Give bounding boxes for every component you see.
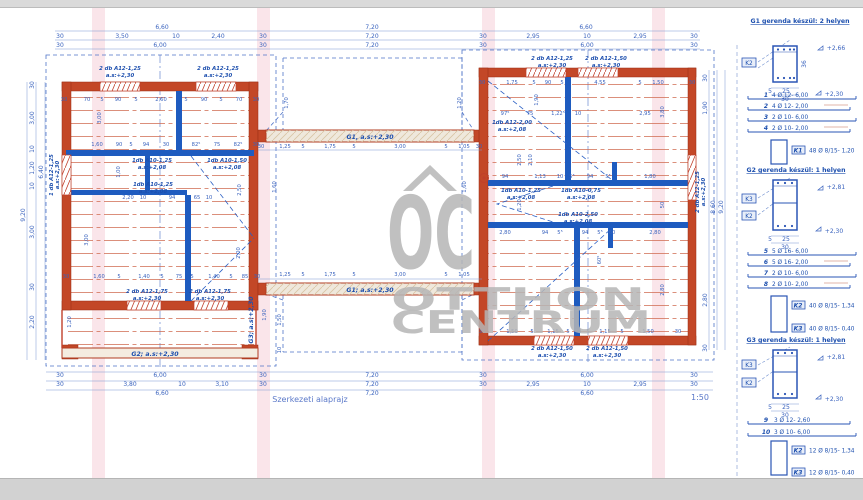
svg-text:2,00: 2,00 [236,247,242,259]
svg-text:a.s:+2,30: a.s:+2,30 [106,73,135,79]
svg-text:30: 30 [259,33,267,40]
svg-text:3,10: 3,10 [215,381,229,388]
svg-text:3,00: 3,00 [394,144,406,150]
svg-text:90: 90 [116,142,123,148]
svg-text:1,50: 1,50 [277,314,283,326]
svg-text:30: 30 [259,42,267,49]
svg-text:30: 30 [163,142,170,148]
svg-text:75: 75 [176,274,183,280]
svg-text:10: 10 [29,145,36,153]
svg-text:4 Ø 12- 2,00: 4 Ø 12- 2,00 [772,103,808,110]
svg-text:a.s:+2,08: a.s:+2,08 [507,195,536,201]
svg-text:2 db A12-1,75: 2 db A12-1,75 [189,289,231,295]
svg-text:48 Ø 8/15- 1,20: 48 Ø 8/15- 1,20 [809,148,855,155]
detail-title-g1: G1 gerenda készül: 2 helyen [751,17,850,25]
svg-text:2,20: 2,20 [29,315,36,329]
svg-text:94: 94 [169,195,176,201]
svg-text:a.s:+2,30: a.s:+2,30 [593,353,622,359]
svg-text:5⁵: 5⁵ [569,174,574,180]
svg-text:1,40: 1,40 [138,274,150,280]
svg-text:12 Ø 8/15- 0,40: 12 Ø 8/15- 0,40 [809,470,855,477]
svg-text:2,40: 2,40 [211,33,225,40]
svg-text:1,80: 1,80 [644,174,656,180]
svg-text:12 Ø 8/15- 1,34: 12 Ø 8/15- 1,34 [809,448,855,455]
svg-text:1,22⁵: 1,22⁵ [551,111,565,117]
svg-text:5⁵: 5⁵ [605,174,610,180]
svg-text:30: 30 [254,274,261,280]
svg-text:a.s:+2,30: a.s:+2,30 [55,161,61,190]
svg-text:5: 5 [219,97,222,103]
svg-text:94: 94 [143,142,150,148]
svg-text:5: 5 [229,274,232,280]
svg-text:K1: K1 [794,148,803,155]
svg-text:5: 5 [301,144,304,150]
svg-text:2,50: 2,50 [237,184,243,196]
svg-text:7,20: 7,20 [365,390,379,397]
svg-text:2,80: 2,80 [649,230,661,236]
svg-text:5: 5 [444,144,447,150]
svg-text:6,00: 6,00 [153,372,167,379]
svg-text:5: 5 [190,274,193,280]
svg-text:1,20: 1,20 [29,161,36,175]
svg-text:30: 30 [476,144,483,150]
svg-text:5: 5 [160,274,163,280]
svg-text:90: 90 [115,97,122,103]
svg-text:94: 94 [502,174,509,180]
svg-text:5 Ø 16- 6,00: 5 Ø 16- 6,00 [772,248,808,255]
svg-text:3 Ø 12- 2,60: 3 Ø 12- 2,60 [774,417,810,424]
svg-text:a.s:+2,30: a.s:+2,30 [592,63,621,69]
svg-text:1,90: 1,90 [702,101,709,115]
svg-text:a.s:+2,08: a.s:+2,08 [567,195,596,201]
svg-text:40 Ø 8/15- 1,34: 40 Ø 8/15- 1,34 [809,303,855,310]
svg-text:1,25: 1,25 [279,144,291,150]
svg-text:30: 30 [479,33,487,40]
svg-text:1,75: 1,75 [506,80,518,86]
svg-text:5: 5 [129,142,132,148]
svg-text:5: 5 [134,97,137,103]
svg-text:10: 10 [583,33,591,40]
svg-text:2: 2 [764,103,768,110]
oc-logo-letters: OC [387,175,475,292]
svg-text:2 db A12-1,75: 2 db A12-1,75 [126,289,168,295]
svg-text:90: 90 [201,97,208,103]
svg-text:a.s:+2,08: a.s:+2,08 [138,165,167,171]
svg-text:82⁵: 82⁵ [192,142,201,148]
svg-text:6,60: 6,60 [579,24,593,31]
svg-text:a.s:+2,30: a.s:+2,30 [538,63,567,69]
svg-text:30: 30 [479,372,487,379]
svg-text:10: 10 [583,381,591,388]
svg-text:K2: K2 [794,448,803,455]
svg-text:30: 30 [689,80,696,86]
svg-text:1,05: 1,05 [458,144,470,150]
svg-text:1,90: 1,90 [262,309,268,321]
svg-text:60⁵: 60⁵ [597,256,603,265]
svg-text:5: 5 [100,97,103,103]
svg-text:K3: K3 [794,470,803,477]
svg-text:a.s:+2,08: a.s:+2,08 [498,127,527,133]
svg-text:1db A12-2,00: 1db A12-2,00 [492,120,532,126]
svg-text:94: 94 [582,230,589,236]
svg-text:1,00: 1,00 [116,166,122,178]
svg-text:30: 30 [675,329,682,335]
svg-text:3,00: 3,00 [29,111,36,125]
svg-text:1db A10-0,75: 1db A10-0,75 [561,188,601,194]
svg-text:3,50: 3,50 [115,33,129,40]
svg-text:9: 9 [764,417,768,424]
svg-text:30: 30 [690,381,698,388]
svg-text:5: 5 [768,236,772,243]
svg-text:3,00: 3,00 [84,234,90,246]
svg-text:4 Ø 12- 6,00: 4 Ø 12- 6,00 [772,92,808,99]
svg-text:+2,81: +2,81 [827,184,846,191]
beam-label-g3: G3; a.s:+2,30 [248,296,255,344]
svg-text:1,75: 1,75 [324,144,336,150]
svg-text:+2,30: +2,30 [825,396,844,403]
svg-text:1,20: 1,20 [67,316,73,328]
svg-text:7,20: 7,20 [365,42,379,49]
lintel-note: 2 db A12-1,25 [99,66,141,72]
svg-text:2 db A12-1,25: 2 db A12-1,25 [531,56,573,62]
svg-text:30: 30 [63,274,70,280]
svg-text:6,60: 6,60 [580,390,594,397]
svg-text:3: 3 [764,114,768,121]
svg-text:2,95: 2,95 [526,33,540,40]
svg-text:9,20: 9,20 [718,200,725,214]
dim: 6,60 [155,24,169,31]
svg-text:30: 30 [61,97,68,103]
svg-text:8,60: 8,60 [710,200,717,214]
svg-text:2 db A12-1,50: 2 db A12-1,50 [586,346,628,352]
svg-text:1,60: 1,60 [93,274,105,280]
svg-text:1,25: 1,25 [279,272,291,278]
svg-text:70: 70 [236,97,243,103]
svg-text:1,20: 1,20 [457,97,463,109]
svg-text:30: 30 [56,42,64,49]
svg-text:30: 30 [702,344,709,352]
svg-text:10: 10 [575,111,582,117]
svg-text:97⁵: 97⁵ [501,111,510,117]
svg-text:5: 5 [560,80,563,86]
svg-text:5: 5 [117,274,120,280]
svg-text:3 Ø 10- 6,00: 3 Ø 10- 6,00 [774,429,810,436]
svg-text:30: 30 [690,33,698,40]
svg-text:30: 30 [479,42,487,49]
svg-text:7,20: 7,20 [365,381,379,388]
svg-text:25: 25 [782,236,790,243]
svg-text:2,10: 2,10 [528,154,534,166]
svg-text:1db A10-2,50: 1db A10-2,50 [558,212,598,218]
svg-text:70: 70 [84,97,91,103]
svg-text:5: 5 [301,272,304,278]
svg-text:K3: K3 [745,363,753,369]
svg-text:5: 5 [638,80,641,86]
svg-text:K2: K2 [745,214,753,220]
drawing-title: Szerkezeti alaprajz [272,395,348,404]
svg-text:2,20: 2,20 [122,195,134,201]
svg-text:5: 5 [352,144,355,150]
svg-text:30: 30 [56,381,64,388]
svg-text:2,95: 2,95 [526,381,540,388]
svg-text:1,70: 1,70 [284,97,290,109]
svg-text:30: 30 [259,381,267,388]
svg-text:a.s:+2,08: a.s:+2,08 [139,189,168,195]
svg-text:60: 60 [609,230,616,236]
svg-text:25: 25 [782,404,790,411]
svg-text:82⁵: 82⁵ [234,142,243,148]
svg-text:7,20: 7,20 [365,24,379,31]
svg-text:+2,30: +2,30 [825,228,844,235]
svg-text:10: 10 [277,347,283,354]
svg-text:5: 5 [764,248,768,255]
svg-text:1db A10-1,25: 1db A10-1,25 [133,182,173,188]
svg-text:30: 30 [690,372,698,379]
svg-text:5⁵: 5⁵ [597,230,602,236]
svg-text:3,80: 3,80 [123,381,137,388]
svg-text:a.s:+2,30: a.s:+2,30 [204,73,233,79]
drawing-scale: 1:50 [691,393,709,402]
svg-text:10: 10 [29,182,36,190]
svg-text:1: 1 [764,92,768,99]
svg-text:1db A10-1,50: 1db A10-1,50 [207,158,247,164]
svg-text:10: 10 [206,195,213,201]
svg-text:10: 10 [172,33,180,40]
svg-text:K2: K2 [745,381,753,387]
svg-text:2,60: 2,60 [155,97,167,103]
svg-text:2 db A12-1,50: 2 db A12-1,50 [531,346,573,352]
svg-text:5⁵: 5⁵ [557,230,562,236]
svg-text:5: 5 [532,80,535,86]
svg-text:40 Ø 8/15- 0,40: 40 Ø 8/15- 0,40 [809,326,855,333]
svg-text:3,00: 3,00 [29,225,36,239]
svg-text:30: 30 [479,381,487,388]
svg-text:1,40: 1,40 [208,274,220,280]
svg-text:3,00: 3,00 [97,112,103,124]
svg-text:5: 5 [768,404,772,411]
svg-text:1,60: 1,60 [272,181,278,193]
svg-text:1db A10-1,25: 1db A10-1,25 [501,188,541,194]
svg-text:94: 94 [587,174,594,180]
svg-text:a.s:+2,30: a.s:+2,30 [196,296,225,302]
svg-text:a.s:+2,08: a.s:+2,08 [564,219,593,225]
svg-text:2 Ø 10- 2,00: 2 Ø 10- 2,00 [772,125,808,132]
svg-text:K3: K3 [794,326,803,333]
svg-text:1,90: 1,90 [534,94,540,106]
svg-text:30: 30 [259,372,267,379]
floor-plan-sheet: 6,60 30 3,50 10 2,40 30 30 6,00 30 7,20 … [0,0,863,500]
svg-text:36: 36 [801,60,808,68]
svg-text:94: 94 [542,230,549,236]
svg-text:2,95: 2,95 [633,381,647,388]
svg-text:7,20: 7,20 [365,372,379,379]
svg-text:6: 6 [764,259,768,266]
svg-text:30: 30 [29,283,36,291]
svg-text:6,40: 6,40 [38,165,45,179]
svg-text:30: 30 [253,142,260,148]
detail-title-g3: G3 gerenda készül: 1 helyen [747,336,846,344]
svg-text:2,80: 2,80 [499,230,511,236]
svg-text:2 Ø 10- 6,00: 2 Ø 10- 6,00 [772,114,808,121]
svg-text:1db A10-1,25: 1db A10-1,25 [132,158,172,164]
svg-text:85: 85 [242,274,249,280]
svg-text:30: 30 [56,372,64,379]
floor-plan-drawing: 6,60 30 3,50 10 2,40 30 30 6,00 30 7,20 … [0,0,863,500]
svg-text:1,13: 1,13 [534,174,546,180]
svg-text:5: 5 [184,97,187,103]
svg-text:a.s:+2,30: a.s:+2,30 [701,178,707,207]
svg-text:75: 75 [214,142,221,148]
svg-text:2,95: 2,95 [633,33,647,40]
svg-text:4,55: 4,55 [594,80,606,86]
svg-text:4: 4 [764,125,768,132]
svg-text:90: 90 [545,80,552,86]
svg-text:2 db A12-1,50: 2 db A12-1,50 [585,56,627,62]
beam-label-g2: G2; a.s:+2,30 [131,351,179,358]
svg-text:6,00: 6,00 [580,372,594,379]
svg-text:1,60: 1,60 [91,142,103,148]
svg-text:6,60: 6,60 [155,390,169,397]
detail-title-g2: G2 gerenda készül: 1 helyen [747,166,846,174]
svg-text:a.s:+2,08: a.s:+2,08 [213,165,242,171]
svg-text:30: 30 [690,42,698,49]
svg-text:8: 8 [764,281,768,288]
svg-text:6,00: 6,00 [153,42,167,49]
svg-text:2,95: 2,95 [639,111,651,117]
svg-text:30: 30 [253,97,260,103]
svg-text:7,20: 7,20 [365,33,379,40]
svg-text:6,00: 6,00 [580,42,594,49]
svg-text:2 Ø 10- 2,00: 2 Ø 10- 2,00 [772,281,808,288]
svg-text:2 db A12-1,25: 2 db A12-1,25 [197,66,239,72]
svg-text:65: 65 [194,195,201,201]
svg-text:75: 75 [527,111,534,117]
svg-text:3,80: 3,80 [660,106,666,118]
svg-text:1,75: 1,75 [324,272,336,278]
svg-text:+2,81: +2,81 [827,354,846,361]
svg-text:10: 10 [140,195,147,201]
svg-text:10: 10 [557,174,564,180]
svg-text:5 Ø 16- 2,00: 5 Ø 16- 2,00 [772,259,808,266]
k-label: K2 [745,61,753,67]
svg-text:30: 30 [702,74,709,82]
svg-text:a.s:+2,30: a.s:+2,30 [133,296,162,302]
svg-text:2,80: 2,80 [660,284,666,296]
watermark-line2: CENTRUM [391,305,651,341]
svg-text:50: 50 [660,202,666,209]
section-g2 [773,180,797,230]
svg-text:K2: K2 [794,303,803,310]
beam-label-g1-top: G1, a.s:+2,30 [346,134,394,141]
elevation: +2,66 [827,45,846,52]
section-g3 [773,350,797,398]
svg-text:1,50: 1,50 [652,80,664,86]
svg-text:2,80: 2,80 [702,293,709,307]
svg-text:a.s:+2,30: a.s:+2,30 [538,353,567,359]
elevation: +2,30 [825,91,844,98]
svg-text:30: 30 [29,81,36,89]
svg-text:K3: K3 [745,197,753,203]
svg-text:2 Ø 10- 6,00: 2 Ø 10- 6,00 [772,270,808,277]
svg-text:10: 10 [762,429,770,436]
section-g1 [773,46,797,82]
svg-text:9,20: 9,20 [20,208,27,222]
svg-text:10: 10 [178,381,186,388]
svg-text:30: 30 [479,80,486,86]
svg-text:2,50: 2,50 [517,154,523,166]
svg-text:30: 30 [56,33,64,40]
svg-text:5: 5 [352,272,355,278]
